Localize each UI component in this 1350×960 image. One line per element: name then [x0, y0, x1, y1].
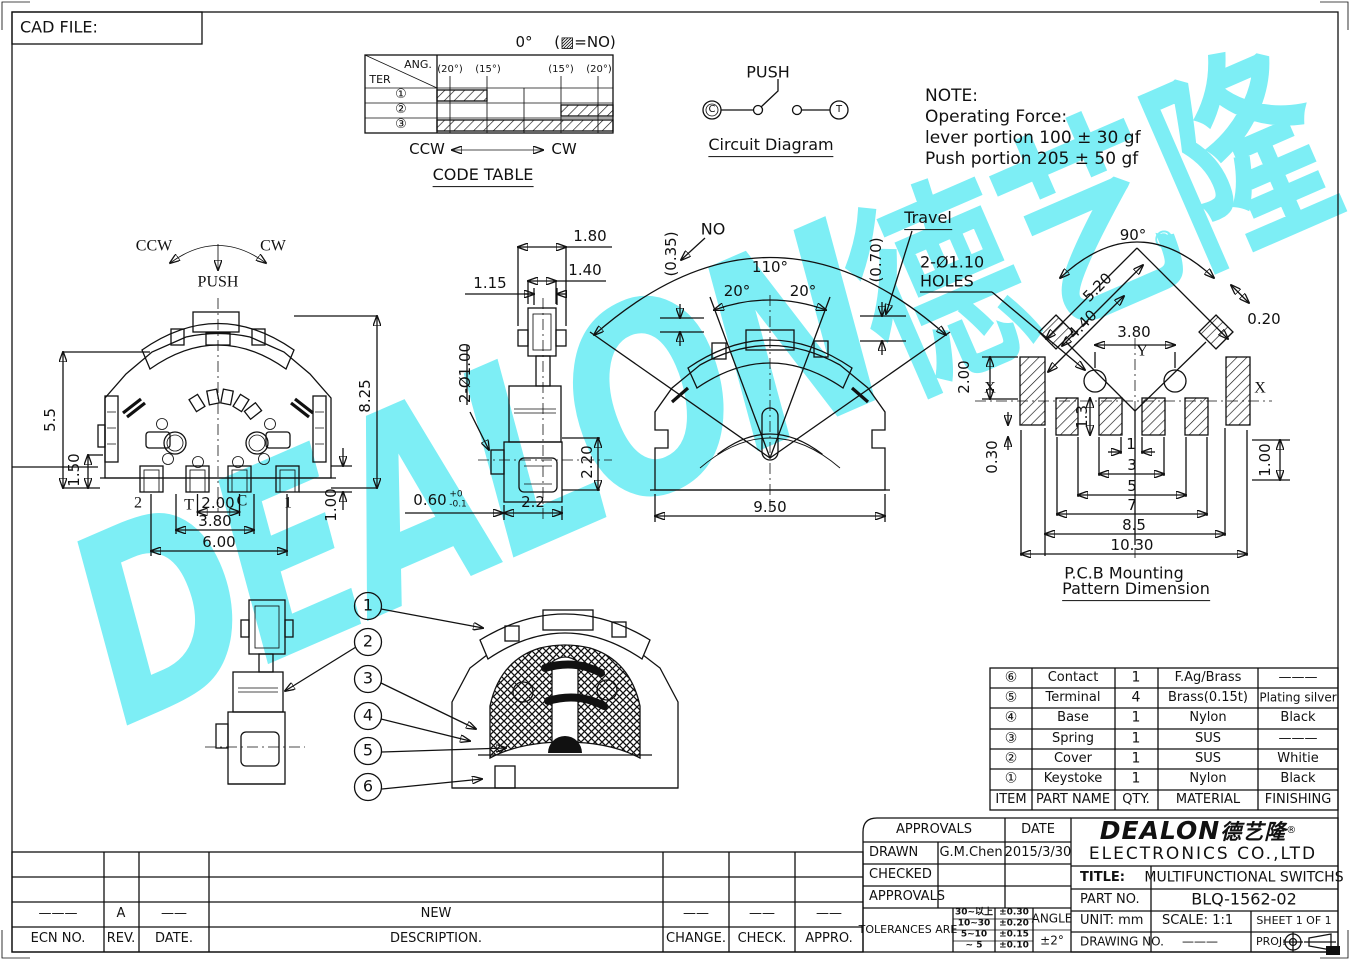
- center-no-value: (0.35): [664, 231, 680, 276]
- parts-header-finishing: FINISHING: [1265, 793, 1332, 807]
- parts-row-6-qty: 1: [1132, 671, 1141, 686]
- front-terminal-t: T: [184, 498, 194, 515]
- parts-row-5-finishing: Plating silver: [1259, 692, 1336, 705]
- tol-val-10-30: ±0.20: [999, 919, 1029, 928]
- center-angle-20-left: 20°: [724, 284, 751, 300]
- checked-label: CHECKED: [869, 868, 932, 882]
- pcb-dim-5: 5: [1127, 479, 1137, 495]
- approvals-row-label: APPROVALS: [869, 890, 945, 904]
- side-dim-0-60-tol-lower: -0.1: [449, 500, 467, 509]
- note-line-push: Push portion 205 ± 50 gf: [925, 151, 1138, 169]
- code-table-row3-num: ③: [395, 118, 407, 132]
- company-logo-cjk: 德艺隆: [1220, 820, 1286, 844]
- rev-description-value: NEW: [421, 907, 452, 921]
- balloon-5: 5: [363, 743, 373, 760]
- front-terminal-2: 2: [134, 496, 142, 513]
- front-dim-3-80: 3.80: [198, 514, 231, 530]
- title-label: TITLE:: [1080, 871, 1125, 885]
- front-push-label: PUSH: [198, 275, 239, 292]
- parts-row-2-material: SUS: [1195, 752, 1221, 766]
- parts-row-5-item: ⑤: [1005, 691, 1018, 706]
- parts-header-material: MATERIAL: [1176, 793, 1240, 807]
- rev-appro-dash: ——: [816, 907, 842, 921]
- tol-range-5-10: 5~10: [961, 930, 987, 939]
- side-dim-1-80: 1.80: [573, 229, 606, 245]
- rev-header-check: CHECK.: [738, 932, 787, 946]
- rev-header-rev: REV.: [107, 932, 136, 946]
- parts-row-6-item: ⑥: [1005, 671, 1018, 686]
- center-angle-110: 110°: [752, 260, 788, 276]
- approvals-header: APPROVALS: [896, 823, 972, 837]
- parts-row-3-item: ③: [1005, 732, 1018, 747]
- pcb-axis-x-right: X: [1254, 381, 1266, 398]
- code-table-zero-label: 0°: [515, 35, 532, 51]
- parts-row-2-qty: 1: [1132, 752, 1141, 767]
- code-table-cw-label: CW: [551, 142, 576, 158]
- code-table-col-20r: (20°): [586, 65, 612, 76]
- pcb-registered-icon: ®: [1156, 230, 1173, 248]
- angle-label: ANGLE: [1032, 913, 1073, 926]
- circuit-t-terminal: T: [836, 105, 842, 116]
- parts-row-3-qty: 1: [1132, 732, 1141, 747]
- parts-row-1-qty: 1: [1132, 772, 1141, 787]
- balloon-6: 6: [363, 779, 373, 796]
- pcb-angle-90: 90°: [1120, 228, 1147, 244]
- company-registered-icon: ®: [1286, 825, 1296, 836]
- side-dim-0-60: 0.60: [413, 493, 446, 509]
- pcb-holes-callout-dia: 2-Ø1.10: [920, 255, 984, 272]
- note-line-lever: lever portion 100 ± 30 gf: [925, 130, 1141, 148]
- balloon-3: 3: [363, 671, 373, 688]
- front-dim-5-5: 5.5: [43, 408, 59, 432]
- tol-range-under5: ~ 5: [966, 941, 983, 950]
- pcb-dim-2-00: 2.00: [957, 360, 973, 393]
- tol-val-under5: ±0.10: [999, 941, 1029, 950]
- front-dim-1-00: 1.00: [324, 488, 340, 521]
- front-dim-8-25: 8.25: [358, 379, 374, 412]
- parts-row-2-finishing: Whitie: [1277, 752, 1318, 766]
- code-table-row2-num: ②: [395, 103, 407, 117]
- pcb-dim-1-3: 1.3: [1075, 405, 1091, 429]
- rev-header-date: DATE.: [155, 932, 193, 946]
- parts-header-name: PART NAME: [1036, 793, 1110, 807]
- parts-row-3-name: Spring: [1052, 732, 1094, 746]
- center-dim-9-50: 9.50: [753, 500, 786, 516]
- code-table-col-20l: (20°): [437, 65, 463, 76]
- rev-header-change: CHANGE.: [666, 932, 726, 946]
- drawing-no-value: ———: [1182, 936, 1218, 949]
- part-no-label: PART NO.: [1080, 893, 1140, 907]
- rev-date-dash: ——: [161, 907, 187, 921]
- front-dim-2-00: 2.00: [201, 496, 234, 512]
- pcb-dim-1-00: 1.00: [1258, 443, 1274, 476]
- drawing-sheet: DEALON德艺隆 ®: [0, 0, 1350, 960]
- tol-range-30up: 30~以上: [955, 908, 993, 917]
- parts-row-5-material: Brass(0.15t): [1168, 691, 1248, 705]
- cad-file-label: CAD FILE:: [20, 20, 98, 37]
- company-logo-latin: DEALON: [1100, 816, 1220, 845]
- front-terminal-c: C: [237, 494, 248, 511]
- code-table-ccw-label: CCW: [409, 142, 445, 158]
- drawn-date-value: 2015/3/30: [1005, 846, 1072, 860]
- front-ccw-label: CCW: [136, 239, 172, 256]
- front-terminal-1: 1: [284, 496, 292, 513]
- angle-value: ±2°: [1040, 935, 1064, 948]
- date-header: DATE: [1021, 823, 1055, 837]
- rev-header-ecn: ECN NO.: [31, 932, 86, 946]
- pcb-dim-8-5: 8.5: [1122, 518, 1146, 534]
- code-table-col-15l: (15°): [475, 65, 501, 76]
- parts-row-1-name: Keystoke: [1044, 772, 1102, 786]
- drawn-label: DRAWN: [869, 846, 918, 860]
- rev-letter: A: [117, 907, 126, 921]
- sheet-value: SHEET 1 OF 1: [1256, 915, 1331, 927]
- pcb-caption-line2: Pattern Dimension: [1062, 581, 1210, 601]
- parts-row-4-name: Base: [1057, 711, 1089, 725]
- parts-row-6-finishing: ———: [1279, 671, 1318, 685]
- rev-header-appro: APPRO.: [805, 932, 852, 946]
- balloon-2: 2: [363, 634, 373, 651]
- rev-check-dash: ——: [749, 907, 775, 921]
- circuit-push-label: PUSH: [746, 65, 790, 82]
- front-cw-label: CW: [260, 239, 286, 256]
- pcb-dim-0-20: 0.20: [1247, 312, 1280, 328]
- parts-header-qty: QTY.: [1122, 793, 1150, 807]
- parts-row-1-item: ①: [1005, 772, 1018, 787]
- rev-header-description: DESCRIPTION.: [390, 932, 482, 946]
- part-no-value: BLQ-1562-02: [1191, 892, 1297, 909]
- side-dim-2-2: 2.2: [521, 495, 545, 511]
- drawing-no-label: DRAWING NO.: [1080, 936, 1164, 949]
- parts-header-item: ITEM: [995, 793, 1026, 807]
- parts-row-6-name: Contact: [1048, 671, 1099, 685]
- parts-row-3-finishing: ———: [1279, 732, 1318, 746]
- rev-ecn-dash: ———: [39, 907, 78, 921]
- balloon-1: 1: [363, 598, 373, 615]
- parts-row-5-name: Terminal: [1046, 691, 1101, 705]
- parts-row-5-qty: 4: [1132, 691, 1141, 706]
- company-logo: DEALON德艺隆®: [1100, 818, 1296, 844]
- code-table-caption: CODE TABLE: [433, 167, 534, 187]
- code-table-ang-header: ANG.: [404, 59, 432, 71]
- pcb-dim-3: 3: [1127, 458, 1137, 474]
- parts-row-2-name: Cover: [1054, 752, 1092, 766]
- company-name: ELECTRONICS CO.,LTD: [1089, 846, 1317, 864]
- tol-val-30up: ±0.30: [999, 908, 1029, 917]
- title-value: MULTIFUNCTIONAL SWITCHS: [1144, 871, 1343, 886]
- pcb-dim-3-80: 3.80: [1117, 325, 1150, 341]
- drawn-by-value: G.M.Chen: [939, 846, 1002, 860]
- proj-label: PROJ:: [1256, 936, 1286, 948]
- pcb-dim-7: 7: [1127, 498, 1137, 514]
- center-angle-20-right: 20°: [790, 284, 817, 300]
- tol-val-5-10: ±0.15: [999, 930, 1029, 939]
- side-dim-1-15: 1.15: [473, 276, 506, 292]
- pcb-axis-y: Y: [1136, 344, 1148, 361]
- pcb-dim-0-30: 0.30: [985, 440, 1001, 473]
- balloon-4: 4: [363, 708, 373, 725]
- parts-row-4-finishing: Black: [1280, 711, 1315, 725]
- side-dim-2-dia-1-00: 2-Ø1.00: [458, 343, 474, 403]
- front-dim-1-50: 1.50: [67, 453, 83, 486]
- parts-row-4-qty: 1: [1132, 711, 1141, 726]
- parts-row-6-material: F.Ag/Brass: [1175, 671, 1242, 685]
- parts-row-3-material: SUS: [1195, 732, 1221, 746]
- unit-value: UNIT: mm: [1080, 914, 1143, 928]
- parts-row-1-finishing: Black: [1280, 772, 1315, 786]
- rev-change-dash: ——: [683, 907, 709, 921]
- circuit-caption: Circuit Diagram: [708, 137, 833, 157]
- parts-row-1-material: Nylon: [1189, 772, 1226, 786]
- pcb-dim-1: 1: [1126, 437, 1136, 453]
- circuit-c-terminal: C: [709, 105, 716, 116]
- pcb-holes-callout-word: HOLES: [920, 274, 974, 291]
- code-table-ter-header: TER: [369, 74, 390, 86]
- code-table-row1-num: ①: [395, 88, 407, 102]
- side-dim-1-40: 1.40: [568, 263, 601, 279]
- center-travel-label: Travel: [904, 210, 952, 230]
- parts-row-4-material: Nylon: [1189, 711, 1226, 725]
- side-dim-2-20: 2.20: [580, 445, 596, 478]
- parts-row-4-item: ④: [1005, 711, 1018, 726]
- tol-range-10-30: 10~30: [958, 919, 991, 928]
- code-table-col-15r: (15°): [548, 65, 574, 76]
- front-dim-6-00: 6.00: [202, 535, 235, 551]
- tolerances-label: TOLERANCES ARE: [859, 924, 958, 936]
- pcb-dim-10-30: 10.30: [1111, 538, 1154, 554]
- note-title: NOTE:: [925, 88, 978, 106]
- parts-row-2-item: ②: [1005, 752, 1018, 767]
- center-no-label: NO: [701, 222, 726, 239]
- scale-value: SCALE: 1:1: [1162, 914, 1233, 928]
- center-travel-value: (0.70): [869, 237, 885, 282]
- pcb-axis-x-left: X: [984, 381, 996, 398]
- note-line-operating-force: Operating Force:: [925, 109, 1067, 127]
- code-table-legend: (▨=NO): [554, 35, 615, 51]
